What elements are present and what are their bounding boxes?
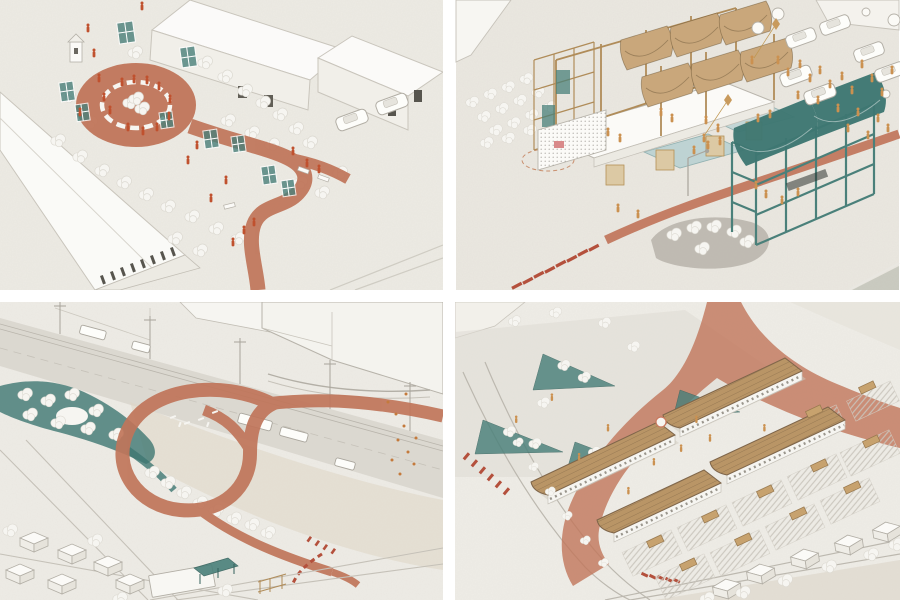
sign-panel: [554, 141, 564, 148]
illustration-board: [0, 0, 900, 600]
panel-interchange-loop-park: [0, 302, 443, 600]
panel-market-plaza: [455, 302, 900, 600]
entry-rotunda: [656, 417, 666, 427]
panel-courtyard-garden: [0, 0, 443, 290]
panel-pavilion-plaza: [455, 0, 900, 290]
